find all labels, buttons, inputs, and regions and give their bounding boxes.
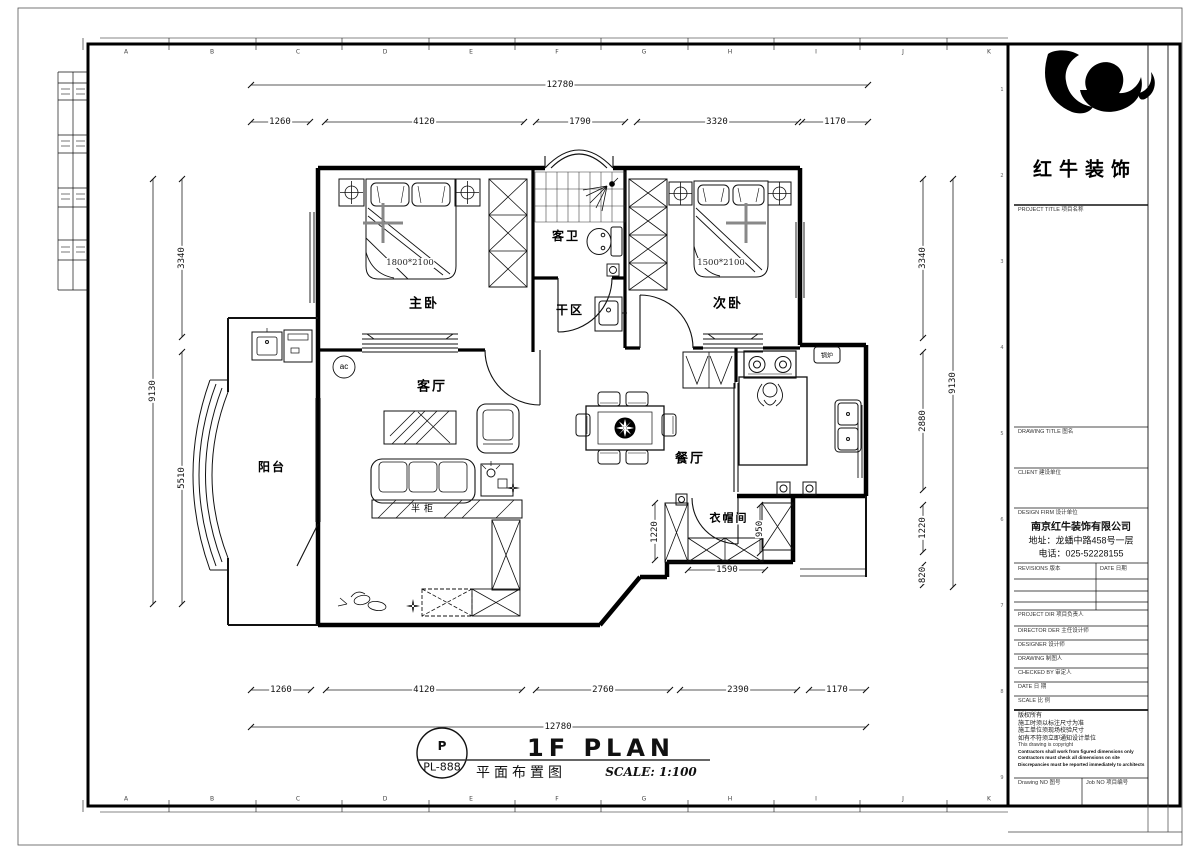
grid-letter: J [902,796,904,803]
grid-number: 2 [1000,173,1003,179]
half-cabinet-label: 半柜 [411,505,437,514]
room-label-dry-area: 干区 [556,304,584,316]
dim-left-overall: 9130 [148,379,158,403]
grid-letter: B [210,49,214,56]
drawing-code-letter: P [438,739,447,753]
balcony-bay-window [193,380,228,570]
grid-letter: K [987,796,991,803]
tb-copyright-en: Contractors must check all dimensions on… [1018,756,1120,761]
balcony-furniture [252,328,312,362]
dim-bottom-seg: 1170 [825,685,849,695]
dim-bottom-seg: 2760 [591,685,615,695]
dim-cloak-bottom: 1590 [715,565,739,575]
cook-figure-icon [757,383,782,406]
dim-bottom-seg: 4120 [412,685,436,695]
dining-furniture [576,392,676,464]
tb-client: CLIENT 建设单位 [1018,471,1061,477]
tb-designer: DESIGNER 设计师 [1018,643,1065,649]
sheet-frame [18,8,1182,845]
dry-area-sink-icon [595,297,627,331]
tb-chief-designer: DIRECTOR DER 主任设计师 [1018,629,1089,635]
shower-tiles [535,172,625,222]
dim-top-seg: 1170 [823,117,847,127]
kitchen-sink-icon [835,400,861,452]
tb-firm-phone: 电话：025-52228155 [1038,550,1123,559]
tb-revisions: REVISIONS 版本 [1018,567,1060,573]
grid-number: 1 [1000,87,1003,93]
grid-letter: G [642,49,647,56]
plant-stones-icon [338,592,387,612]
dim-left-seg: 5510 [177,466,187,490]
tb-copyright-en: This drawing is copyright [1018,743,1073,748]
tb-job-no: Job NO 项目编号 [1086,781,1128,787]
tb-firm-address: 地址：龙蟠中路458号一层 [1028,537,1133,546]
room-label-balcony: 阳台 [258,461,286,473]
dim-bottom-seg: 2390 [726,685,750,695]
tb-firm-name: 南京红牛装饰有限公司 [1031,523,1131,533]
grid-letter: E [469,796,473,803]
footer-title-en: 1F PLAN [527,734,675,762]
grid-number: 7 [1000,603,1003,609]
room-label-second-bedroom: 次卧 [713,297,743,310]
dim-top-seg: 4120 [412,117,436,127]
room-label-master-bedroom: 主卧 [409,297,439,310]
room-label-dining-room: 餐厅 [675,452,705,465]
tb-copyright-cn: 施工单位须现场校验尺寸 [1018,728,1084,734]
tb-drafter: DRAWING 制图人 [1018,657,1062,663]
room-label-cloakroom: 衣帽间 [710,514,749,525]
second-bed-size-label: 1500*2100 [697,258,745,268]
interior-walls [318,168,800,382]
tb-copyright-cn: 施工时须以标注尺寸为准 [1018,721,1084,727]
dim-top-overall: 12780 [545,80,574,90]
ac-label: ac [340,363,348,371]
dim-left-seg: 3340 [177,246,187,270]
grid-number: 8 [1000,689,1003,695]
tb-design-firm: DESIGN FIRM 设计单位 [1018,511,1078,517]
tb-date-row: DATE 日 期 [1018,685,1046,691]
dim-bottom-overall: 12780 [543,722,572,732]
grid-number: 6 [1000,517,1003,523]
dim-bottom-seg: 1260 [269,685,293,695]
grid-number: 9 [1000,775,1003,781]
room-label-living-room: 客厅 [417,380,447,393]
second-bedroom-furniture [629,179,791,290]
dim-top-seg: 1260 [268,117,292,127]
dim-top-seg: 1790 [568,117,592,127]
ceiling-fan-icon [615,418,636,439]
company-name: 红牛装饰 [1033,161,1137,180]
grid-letter: B [210,796,214,803]
kitchen-furniture [683,347,866,576]
grid-letter: E [469,49,473,56]
room-label-guest-bathroom: 客卫 [552,230,580,242]
tb-drawing-title: DRAWING TITLE 图名 [1018,430,1073,436]
grid-letter: A [124,49,128,56]
tb-copyright-en: Contractors shall work from figured dime… [1018,750,1134,755]
tb-copyright-en: Discrepancies must be reported immediate… [1018,763,1144,768]
dim-right-overall: 9130 [948,371,958,395]
tb-scale-row: SCALE 比 例 [1018,699,1050,705]
grid-letter: K [987,49,991,56]
cloakroom-cabinets [665,494,793,562]
footer-scale: SCALE: 1:100 [605,765,697,779]
dim-right-seg: 1220 [918,516,928,540]
dim-top-seg: 3320 [705,117,729,127]
grid-letter: A [124,796,128,803]
grid-letter: C [296,49,300,56]
grid-letter: H [728,49,733,56]
drawing-code: PL-888 [423,761,461,774]
balcony-walls [228,318,866,625]
grid-letter: J [902,49,904,56]
grid-letter: C [296,796,300,803]
dim-right-seg: 3340 [918,246,928,270]
grid-letter: G [642,796,647,803]
master-bed-size-label: 1800*2100 [386,258,434,268]
dim-cloak-left: 1220 [650,520,660,544]
tb-project-title: PROJECT TITLE 项目名称 [1018,208,1084,214]
drawing-sheet: A B C D E F G H I J K A B C D E F G H I … [0,0,1200,852]
master-bedroom-furniture [339,179,527,287]
tb-drawing-no: Drawing NO 图号 [1018,781,1060,787]
grid-letter: D [383,49,388,56]
exterior-walls [318,168,866,625]
tb-copyright-cn: 版权所有 [1018,713,1042,719]
grid-letter: F [555,49,558,56]
doors [297,150,738,566]
grid-letter: D [383,796,388,803]
dimension-lines [153,85,953,727]
tb-project-director: PROJECT DIR 项目负责人 [1018,613,1084,619]
toilet-icon [587,227,622,256]
grid-letter: I [815,796,817,803]
grid-number: 3 [1000,259,1003,265]
floor-drain-icon [607,264,619,276]
dim-right-seg: 820 [918,566,928,584]
tb-date-col: DATE 日期 [1100,567,1127,573]
tb-checked-by: CHECKED BY 审定人 [1018,671,1072,677]
tb-copyright-cn: 如有不符须立即通知设计单位 [1018,736,1096,742]
grid-number: 4 [1000,345,1003,351]
dim-right-seg: 2880 [918,409,928,433]
grid-letter: H [728,796,733,803]
grid-letter: I [815,49,817,56]
boiler-label: 锅炉 [821,351,833,360]
grid-letter: F [555,796,558,803]
dim-cloak-right: 950 [755,520,765,538]
grid-number: 5 [1000,431,1003,437]
footer-title-cn: 平面布置图 [476,762,566,782]
living-room-furniture [333,356,522,616]
company-logo [1045,50,1155,113]
